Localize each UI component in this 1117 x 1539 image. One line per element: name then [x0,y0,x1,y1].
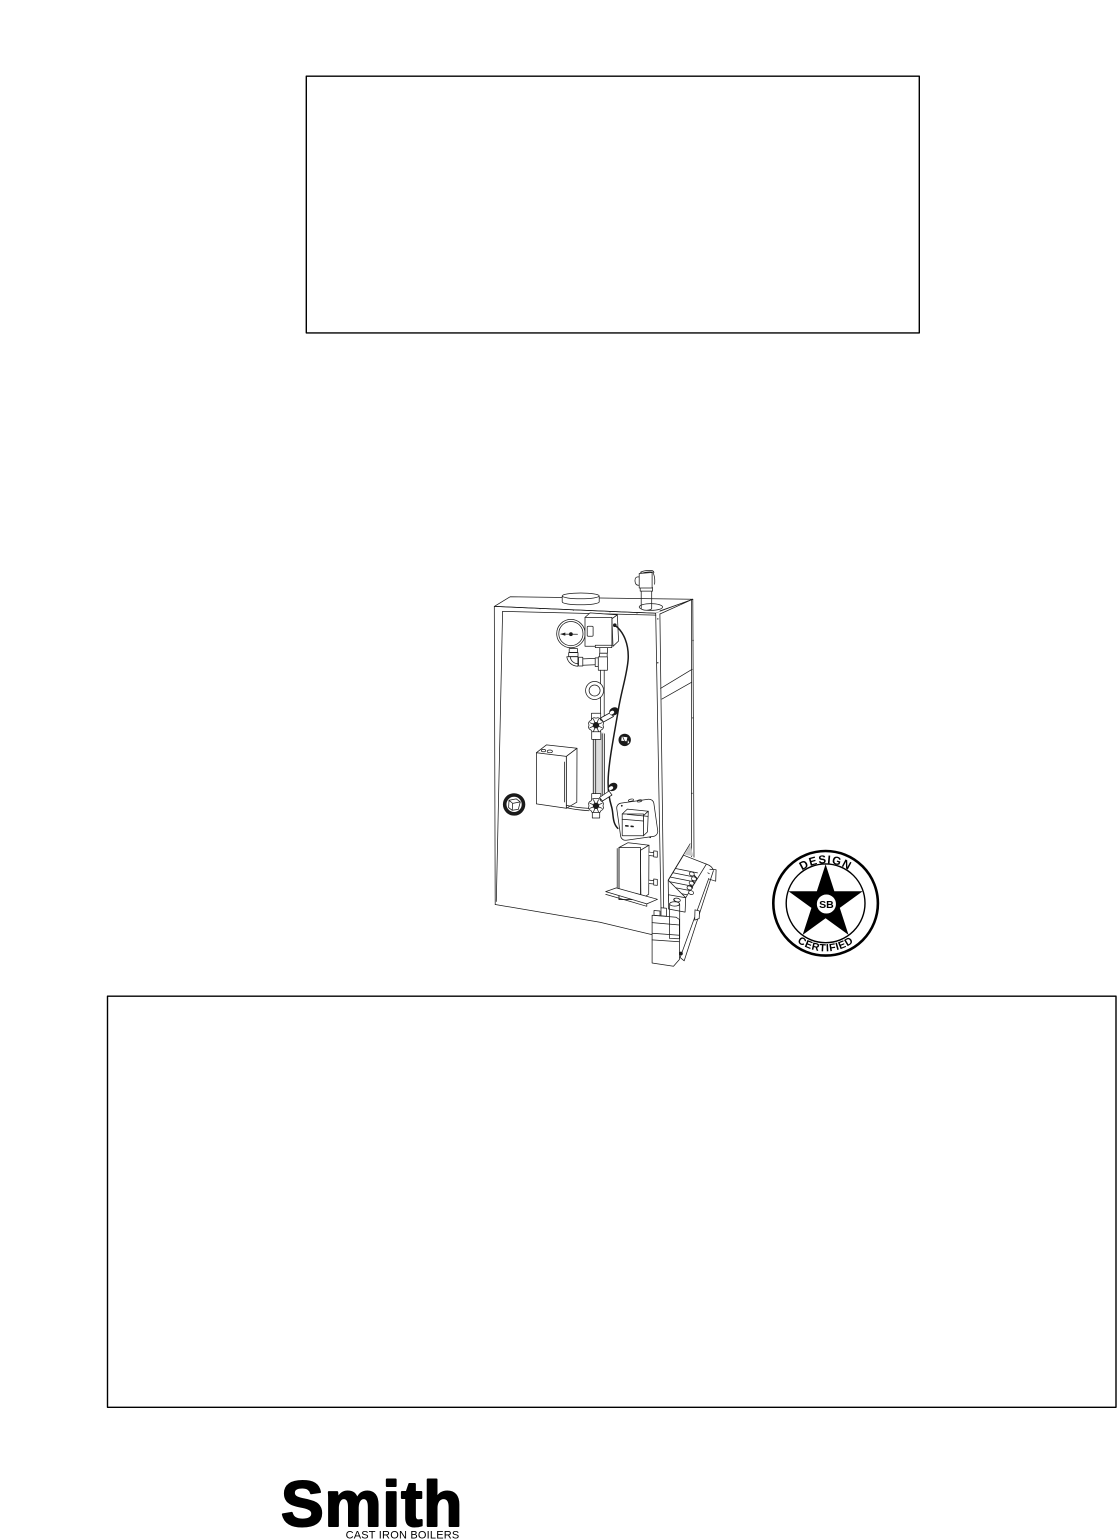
svg-text:SB: SB [819,899,834,911]
svg-text:CAST IRON BOILERS: CAST IRON BOILERS [346,1529,460,1539]
